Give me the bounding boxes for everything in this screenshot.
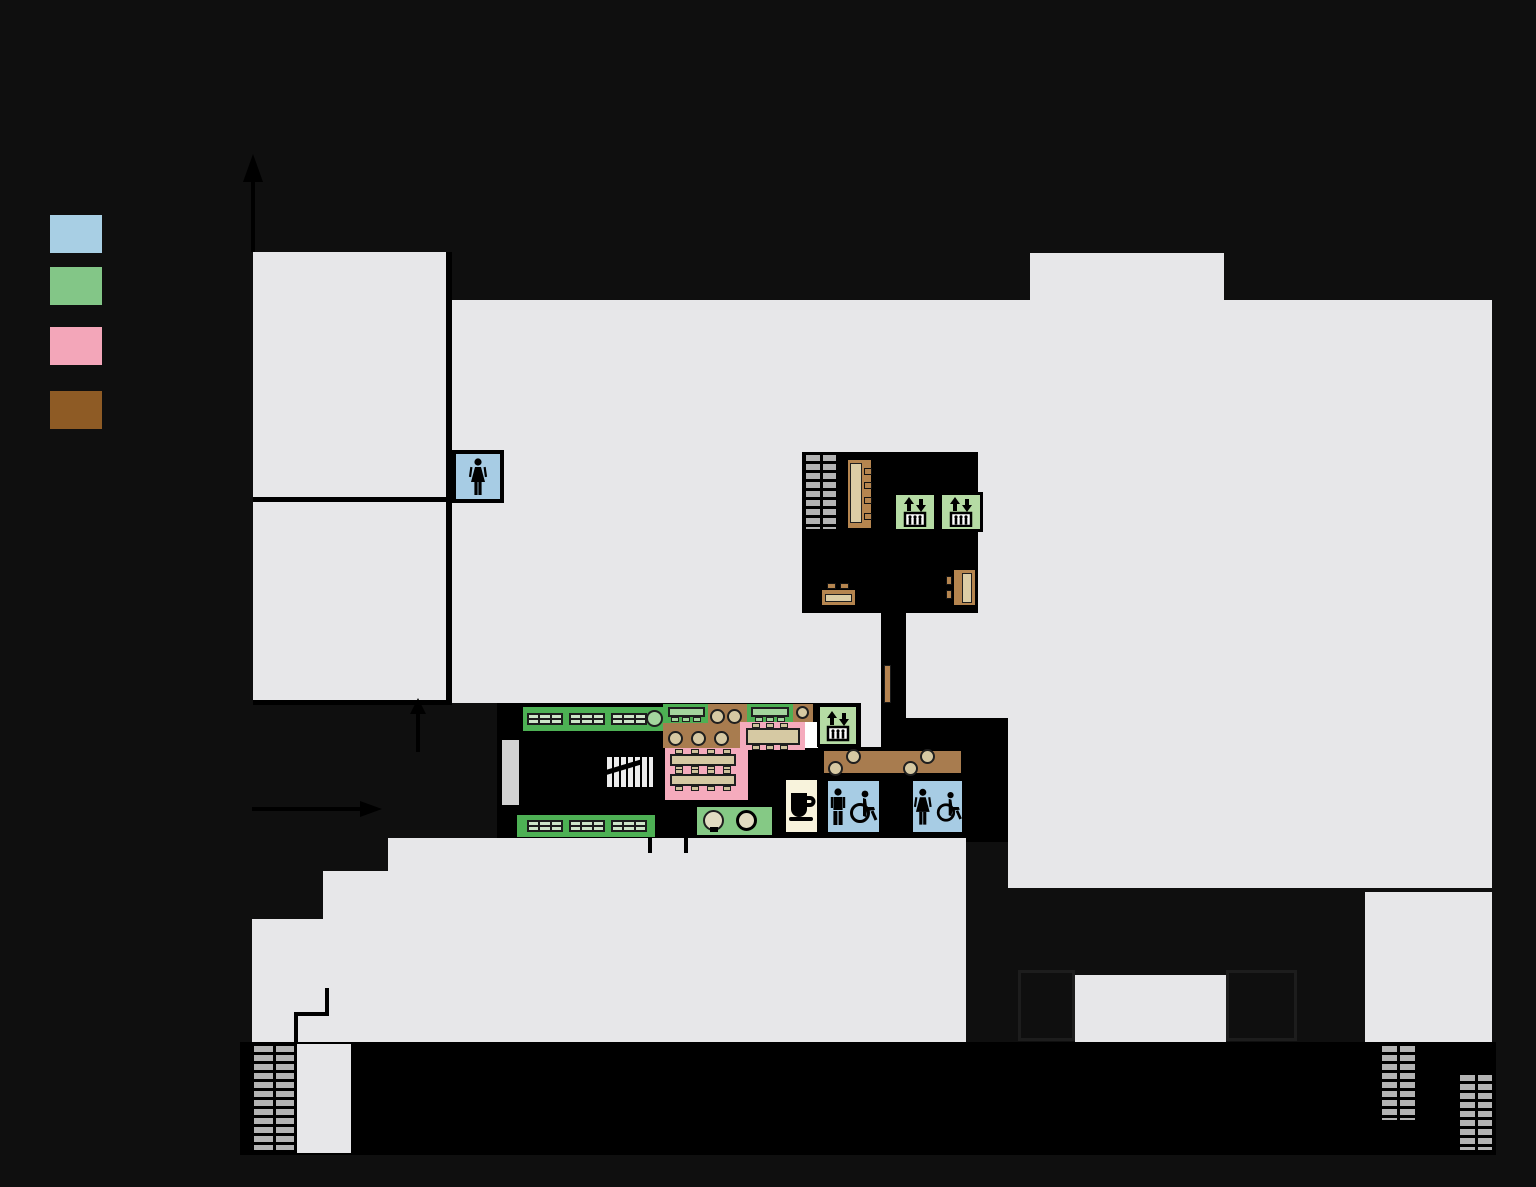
elevator-1 <box>893 492 937 532</box>
stool <box>903 761 918 776</box>
lobby-stairwell <box>804 453 838 531</box>
legend-swatch-green <box>50 267 102 305</box>
chair <box>691 749 699 754</box>
chair <box>675 749 683 754</box>
chair <box>723 749 731 754</box>
womens-restroom <box>452 450 504 503</box>
interior-wall <box>294 1014 298 1042</box>
legend-swatch-pink <box>50 327 102 365</box>
chair <box>864 513 872 520</box>
floor-strip <box>861 703 881 747</box>
chair <box>675 786 683 791</box>
chair <box>752 745 760 750</box>
chair <box>707 749 715 754</box>
stool <box>714 731 729 746</box>
coffee-cup-icon <box>788 787 816 825</box>
cafe <box>783 777 820 835</box>
stairwell-southeast-2 <box>1458 1073 1494 1152</box>
chair <box>766 723 774 728</box>
room-upper-left <box>253 252 452 502</box>
chair <box>840 583 849 589</box>
main-floor-left <box>452 613 881 703</box>
round-table <box>646 710 663 727</box>
lower-hall-step <box>323 871 388 1042</box>
main-floor-step <box>906 613 1008 720</box>
table <box>668 707 705 717</box>
elevator-2 <box>939 492 983 532</box>
stool <box>828 761 843 776</box>
room-outline-1 <box>1018 970 1075 1041</box>
chair <box>864 482 872 489</box>
chair <box>766 745 774 750</box>
chair <box>707 786 715 791</box>
chair <box>946 576 952 585</box>
woman-icon <box>468 458 488 496</box>
stairwell-southeast-1 <box>1380 1044 1417 1122</box>
room-lower-left <box>253 502 452 705</box>
stool <box>691 731 706 746</box>
chair <box>864 497 872 504</box>
entrance-arrow-right-icon <box>250 798 384 820</box>
chair <box>693 717 701 722</box>
chair <box>671 717 679 722</box>
room-outline-2 <box>1226 970 1297 1041</box>
table <box>751 707 789 717</box>
stool <box>796 706 809 719</box>
door-jamb <box>648 838 652 853</box>
stairwell-southwest <box>252 1044 296 1152</box>
chair <box>864 468 872 475</box>
door-jamb <box>684 838 688 853</box>
round-table <box>736 810 757 831</box>
chair <box>707 769 715 774</box>
elevator-icon <box>823 710 853 742</box>
table-top <box>825 594 852 602</box>
bookshelf <box>569 820 605 832</box>
lower-hall-step-2 <box>252 919 323 1042</box>
north-arrow-icon <box>240 152 266 254</box>
chair <box>691 769 699 774</box>
bookshelf <box>611 713 647 725</box>
room-southwest <box>297 1044 351 1153</box>
elevator-icon <box>946 497 976 527</box>
chair <box>723 769 731 774</box>
service-band <box>240 1042 1496 1155</box>
main-floor-right <box>1008 613 1492 888</box>
lower-hall <box>388 838 966 1042</box>
escalator <box>583 755 653 787</box>
legend-swatch-brown <box>50 391 102 429</box>
man-icon <box>830 788 846 826</box>
elevator-3 <box>817 704 859 747</box>
bookshelf <box>569 713 605 725</box>
table-top <box>962 573 972 603</box>
chair <box>675 769 683 774</box>
interior-wall <box>294 1012 329 1016</box>
desk-top <box>850 463 862 523</box>
lobby-table <box>820 588 857 607</box>
room-southeast <box>1365 892 1492 1042</box>
lobby-table <box>952 568 977 607</box>
chair <box>946 590 952 599</box>
stool <box>668 731 683 746</box>
stool <box>846 749 861 764</box>
long-table <box>670 774 736 786</box>
chair <box>710 827 718 832</box>
floor-plan <box>0 0 1536 1187</box>
wheelchair-icon <box>935 790 962 824</box>
bookshelf <box>527 820 563 832</box>
chair <box>723 786 731 791</box>
woman-icon <box>913 788 933 826</box>
room-south-center <box>1075 975 1226 1042</box>
entrance-arrow-up-icon <box>406 696 430 754</box>
long-table <box>670 754 736 766</box>
elevator-icon <box>900 497 930 527</box>
wheelchair-icon <box>848 790 878 824</box>
chair <box>827 583 836 589</box>
main-floor-notch <box>1030 253 1224 300</box>
stool <box>710 709 725 724</box>
bookshelf <box>611 820 647 832</box>
chair <box>752 723 760 728</box>
bookshelf <box>527 713 563 725</box>
interior-wall <box>325 988 329 1016</box>
chair <box>780 723 788 728</box>
wall-segment <box>502 740 519 805</box>
stool <box>920 749 935 764</box>
long-table <box>746 728 800 745</box>
womens-accessible-restroom <box>910 778 965 835</box>
chair <box>780 745 788 750</box>
service-counter <box>822 749 963 775</box>
chair <box>682 717 690 722</box>
legend-swatch-blue <box>50 215 102 253</box>
mens-accessible-restroom <box>825 778 882 835</box>
chair <box>691 786 699 791</box>
door-marker <box>884 665 891 703</box>
